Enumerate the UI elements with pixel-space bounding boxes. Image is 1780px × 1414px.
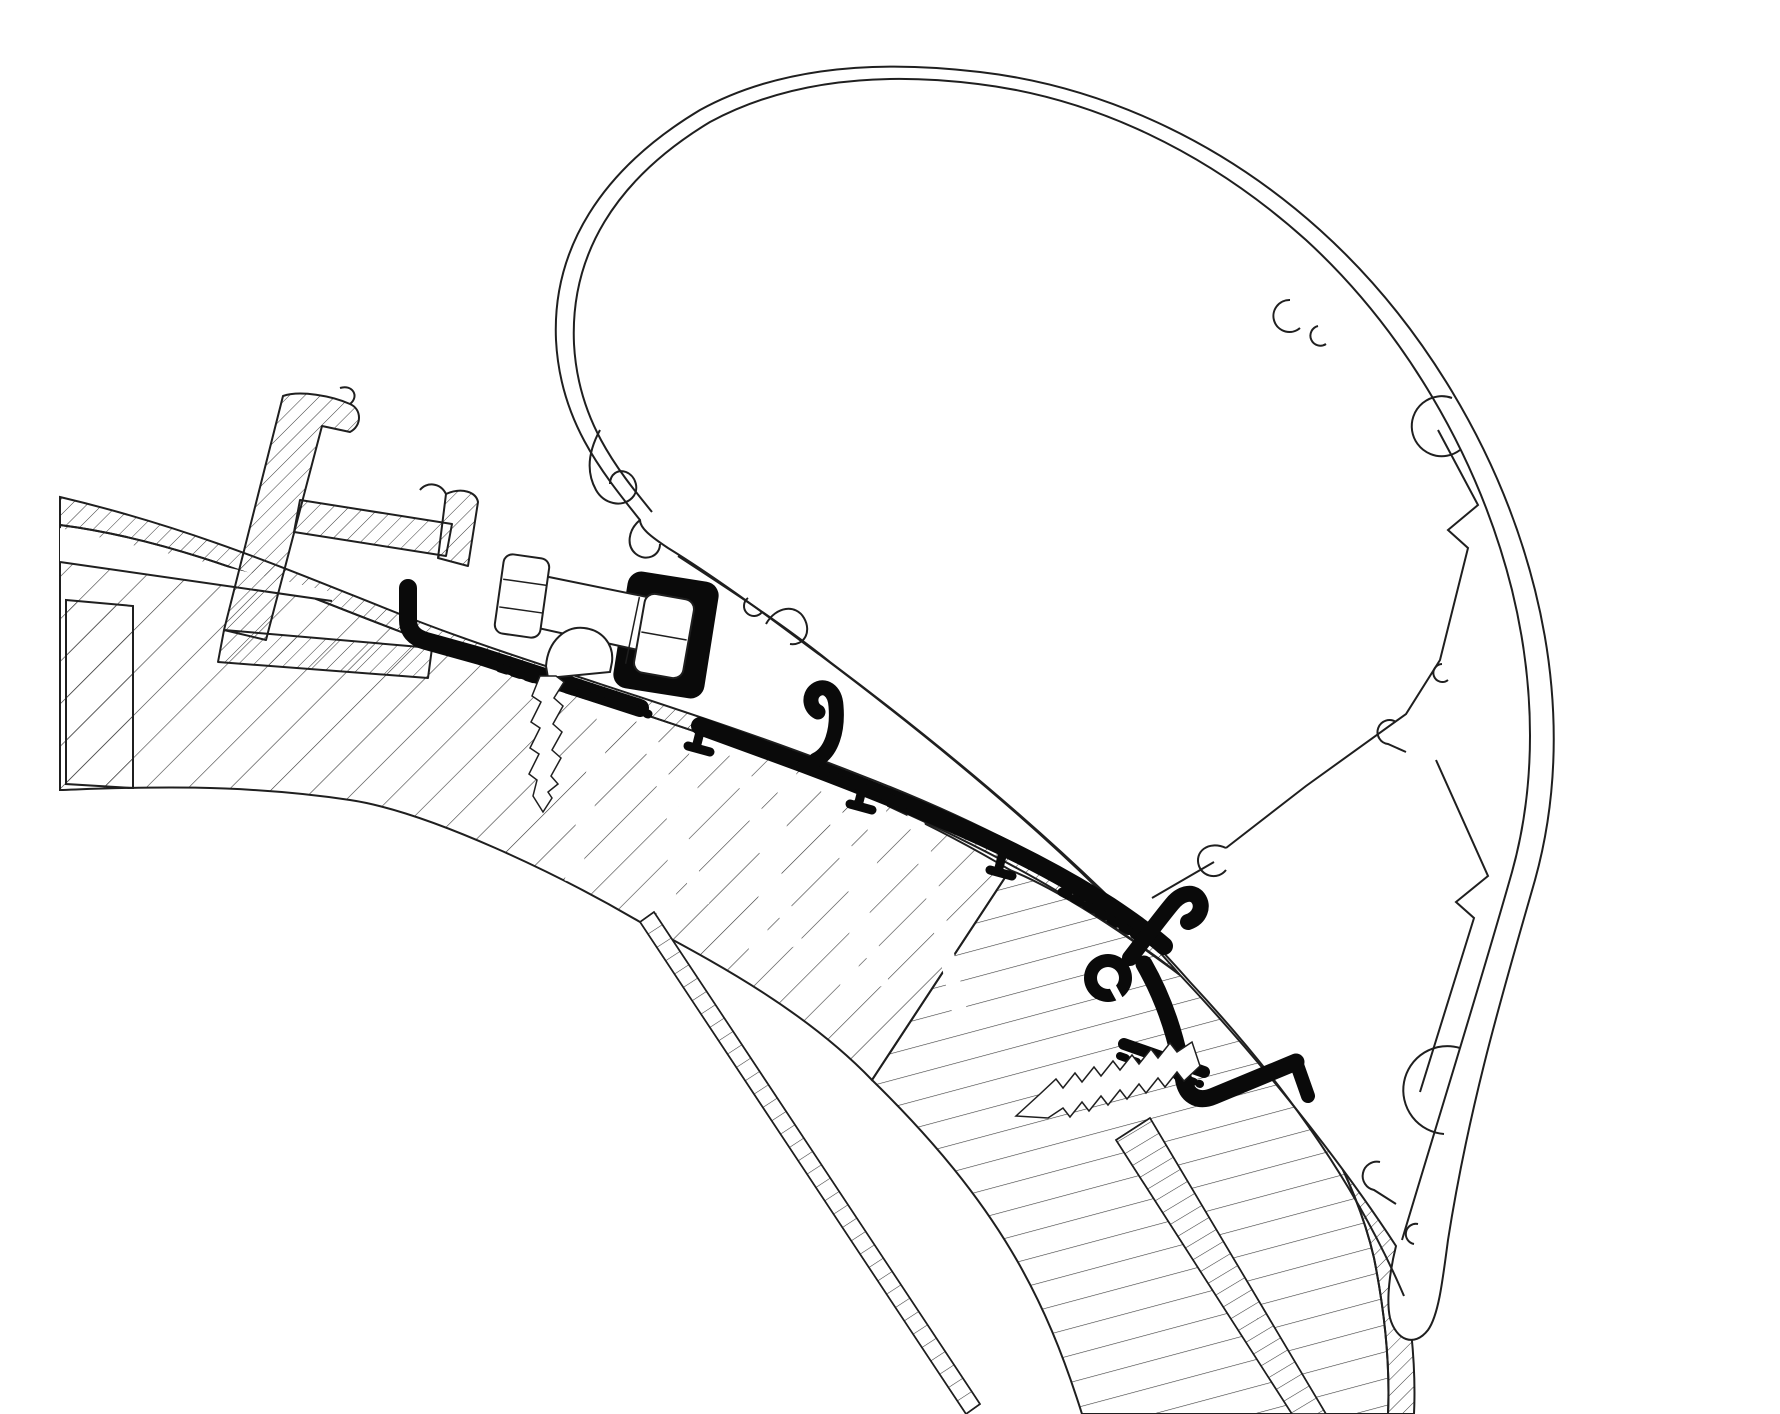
technical-drawing-canvas — [0, 0, 1780, 1414]
hex-bolt-head — [494, 553, 551, 639]
panel-end-block — [66, 600, 133, 788]
